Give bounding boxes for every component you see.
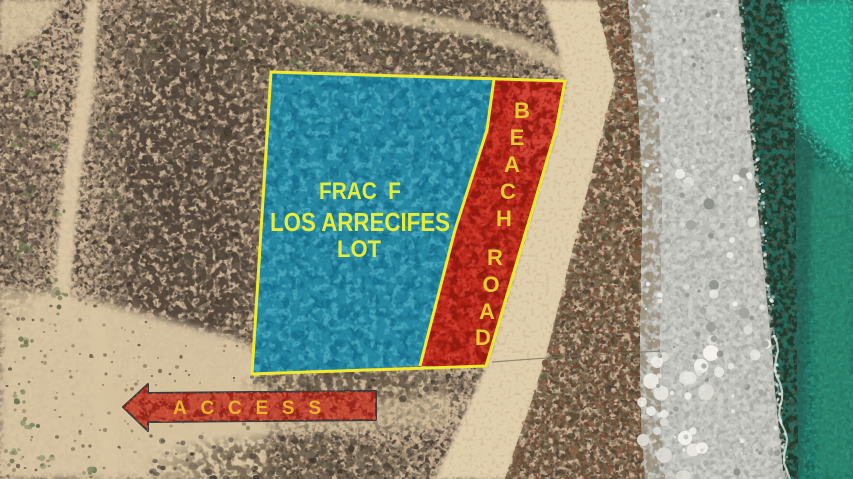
svg-text:A: A: [479, 299, 495, 324]
svg-text:B: B: [514, 98, 530, 123]
svg-text:LOT: LOT: [337, 236, 381, 263]
svg-text:A: A: [504, 152, 520, 177]
svg-text:LOS ARRECIFES: LOS ARRECIFES: [270, 207, 450, 237]
svg-text:C: C: [500, 179, 516, 204]
svg-text:D: D: [475, 325, 491, 350]
svg-text:E: E: [510, 125, 525, 150]
svg-text:H: H: [496, 206, 512, 231]
svg-text:R: R: [487, 245, 503, 270]
svg-text:FRAC F: FRAC F: [319, 178, 401, 205]
svg-text:O: O: [482, 272, 499, 297]
